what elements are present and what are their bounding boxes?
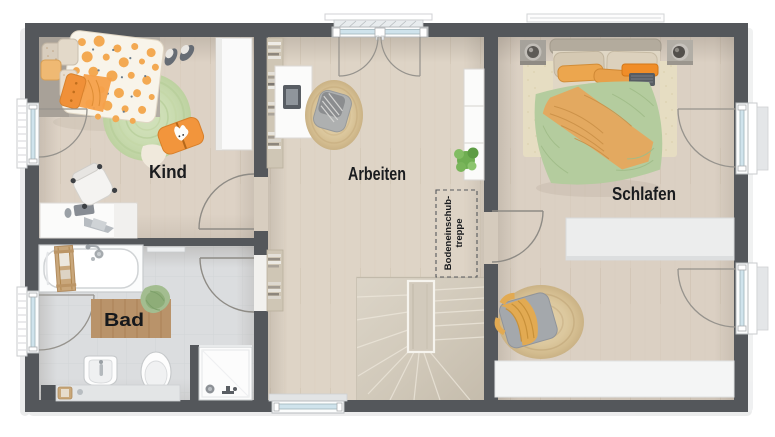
svg-text:Kind: Kind bbox=[149, 161, 187, 182]
svg-text:Schlafen: Schlafen bbox=[612, 183, 676, 204]
svg-text:Bodeneinschub-: Bodeneinschub- bbox=[443, 196, 454, 270]
svg-text:treppe: treppe bbox=[454, 218, 465, 247]
svg-text:Arbeiten: Arbeiten bbox=[348, 163, 406, 184]
svg-text:Bad: Bad bbox=[104, 309, 144, 330]
